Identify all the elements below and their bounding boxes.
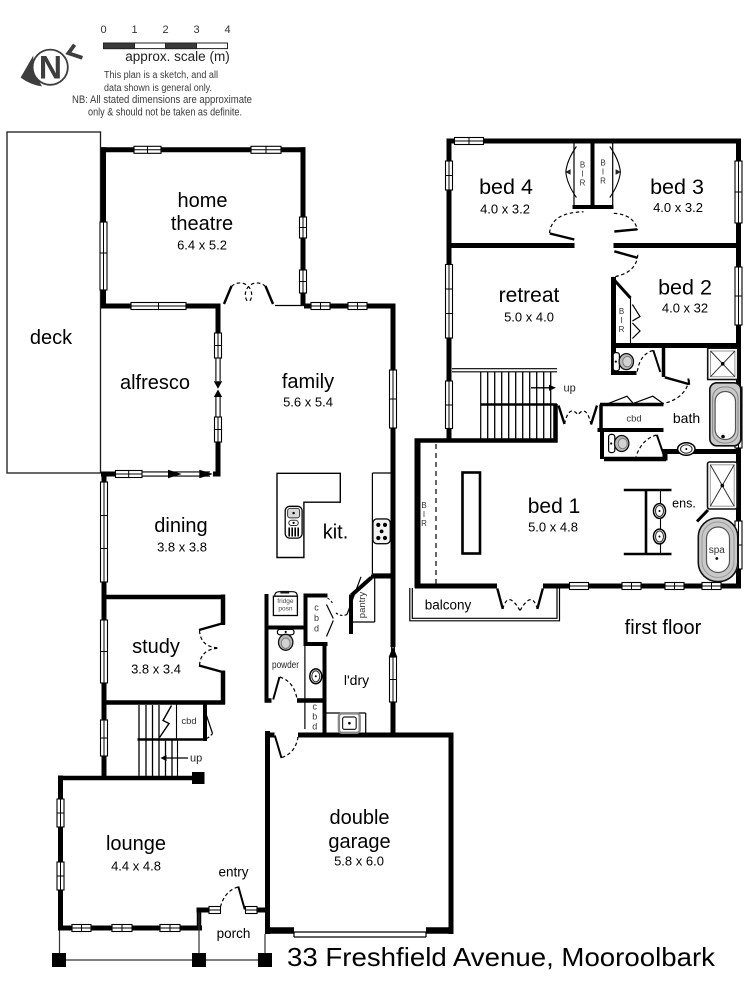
svg-text:theatre: theatre — [171, 213, 233, 235]
svg-text:up: up — [190, 753, 202, 765]
svg-text:cbd: cbd — [181, 716, 196, 727]
svg-text:This plan is a sketch, and all: This plan is a sketch, and all — [104, 70, 218, 81]
svg-text:4: 4 — [224, 24, 230, 36]
svg-text:entry: entry — [218, 865, 248, 880]
svg-text:up: up — [564, 383, 576, 395]
svg-text:c: c — [314, 603, 319, 613]
svg-text:4.0 x 3.2: 4.0 x 3.2 — [653, 200, 703, 215]
svg-text:data shown is general only.: data shown is general only. — [104, 83, 212, 94]
svg-text:0: 0 — [100, 24, 106, 36]
svg-text:family: family — [282, 371, 334, 393]
svg-text:fridge: fridge — [277, 598, 294, 605]
svg-text:I: I — [581, 170, 583, 179]
svg-text:first floor: first floor — [625, 617, 702, 639]
svg-text:R: R — [619, 325, 625, 334]
svg-text:NB: All stated dimensions are: NB: All stated dimensions are approximat… — [72, 94, 252, 106]
svg-text:home: home — [177, 190, 227, 212]
svg-text:dining: dining — [154, 515, 207, 537]
svg-text:pantry: pantry — [357, 592, 368, 619]
svg-text:posn: posn — [278, 606, 292, 613]
svg-text:5.8 x 6.0: 5.8 x 6.0 — [334, 854, 384, 869]
svg-text:spa: spa — [709, 545, 726, 556]
svg-text:only & should not be taken as: only & should not be taken as definite. — [88, 107, 242, 119]
svg-text:bed 1: bed 1 — [528, 495, 581, 518]
svg-text:bed 3: bed 3 — [650, 175, 704, 199]
svg-text:porch: porch — [217, 926, 251, 941]
svg-text:33 Freshfield Avenue, Mooroolb: 33 Freshfield Avenue, Mooroolbark — [287, 942, 716, 972]
svg-text:I: I — [620, 316, 622, 325]
svg-text:R: R — [600, 177, 606, 186]
svg-text:4.0 x 3.2: 4.0 x 3.2 — [480, 202, 530, 217]
svg-text:R: R — [421, 519, 427, 528]
svg-text:cbd: cbd — [626, 414, 641, 425]
svg-text:ens.: ens. — [672, 497, 696, 511]
svg-text:4.4 x 4.8: 4.4 x 4.8 — [111, 859, 161, 874]
svg-text:d: d — [312, 722, 317, 732]
svg-text:5.0 x 4.8: 5.0 x 4.8 — [528, 520, 578, 535]
svg-text:lounge: lounge — [106, 833, 166, 855]
svg-text:bath: bath — [673, 410, 700, 426]
svg-text:garage: garage — [328, 831, 390, 853]
svg-text:bed 2: bed 2 — [658, 276, 712, 300]
svg-text:3.8 x 3.4: 3.8 x 3.4 — [131, 662, 181, 677]
svg-text:B: B — [619, 307, 624, 316]
svg-text:B: B — [421, 501, 426, 510]
svg-text:d: d — [314, 624, 319, 634]
svg-text:bed 4: bed 4 — [479, 175, 533, 199]
svg-text:3.8 x 3.8: 3.8 x 3.8 — [157, 540, 207, 555]
svg-text:study: study — [132, 636, 180, 658]
svg-text:c: c — [313, 702, 318, 712]
svg-text:I: I — [423, 510, 425, 519]
svg-text:1: 1 — [131, 24, 137, 36]
svg-text:l'dry: l'dry — [344, 672, 369, 688]
svg-text:alfresco: alfresco — [120, 372, 190, 394]
svg-text:N: N — [39, 49, 62, 85]
svg-text:I: I — [602, 168, 604, 177]
svg-text:approx. scale (m): approx. scale (m) — [125, 49, 230, 64]
svg-text:4.0 x 32: 4.0 x 32 — [662, 301, 708, 316]
svg-text:6.4 x 5.2: 6.4 x 5.2 — [177, 238, 227, 253]
svg-text:powder: powder — [272, 660, 300, 671]
svg-text:double: double — [329, 807, 389, 829]
svg-text:5.6 x 5.4: 5.6 x 5.4 — [283, 395, 333, 410]
svg-text:balcony: balcony — [425, 598, 472, 613]
svg-text:deck: deck — [30, 327, 73, 349]
svg-text:B: B — [600, 159, 605, 168]
svg-text:2: 2 — [162, 24, 168, 36]
svg-text:5.0 x 4.0: 5.0 x 4.0 — [504, 310, 554, 325]
svg-text:kit.: kit. — [323, 522, 349, 544]
svg-text:b: b — [314, 613, 319, 623]
svg-text:b: b — [312, 712, 317, 722]
svg-text:R: R — [580, 179, 586, 188]
svg-text:retreat: retreat — [499, 284, 560, 307]
svg-text:3: 3 — [193, 24, 199, 36]
svg-text:B: B — [580, 161, 585, 170]
